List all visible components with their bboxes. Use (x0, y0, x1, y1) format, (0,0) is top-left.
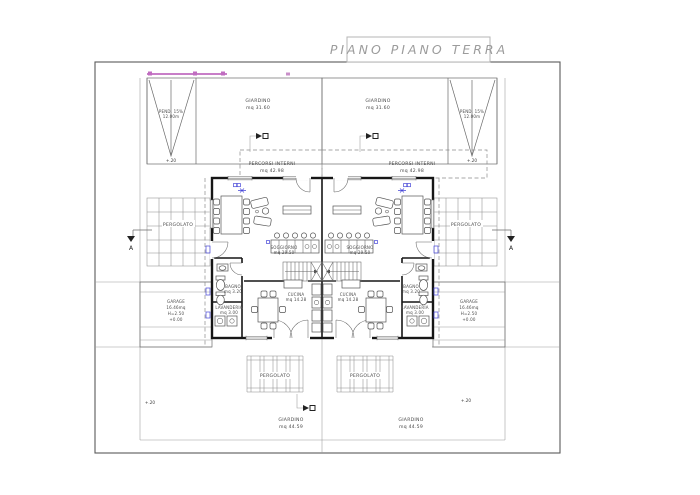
bath-left-area: mq 3.20 (224, 289, 242, 294)
level-tag: +.20 (461, 398, 472, 403)
garden-bottom-right-area: mq 44.59 (399, 424, 423, 430)
ramp-right-label2: 12.00m (464, 114, 481, 119)
section-arrow-icon (507, 236, 515, 242)
living-left-area: mq 29.50 (274, 250, 295, 255)
bath-right-area: mq 3.20 (402, 289, 420, 294)
garage-right-name: GARAGE (460, 299, 478, 304)
garage-right-height: H=2.50 (461, 311, 478, 316)
entrance-arrow-icon (297, 394, 315, 411)
ramp-left-label2: 12.00m (163, 114, 180, 119)
survey-mark-icon (147, 72, 290, 76)
entrance-arrow-icon (250, 133, 268, 152)
garage-right-level: +0.00 (462, 317, 476, 322)
kitchen-left-area: mq 14.28 (286, 297, 307, 302)
pergolato-bottom-right-label: PERGOLATO (350, 373, 380, 379)
garden-bottom-left-area: mq 44.59 (279, 424, 303, 430)
section-marker-right: A (492, 230, 515, 252)
paths-left-name: PERCORSI INTERNI (249, 161, 296, 167)
title-block: PIANO PIANO TERRA (330, 37, 508, 62)
paths-right-area: mq 42.98 (400, 168, 424, 174)
kitchen-right-area: mq 14.28 (338, 297, 359, 302)
entrance-arrow-icon (360, 133, 378, 152)
ramp-right (448, 78, 497, 164)
floor-plan-canvas: PIANO PIANO TERRA (0, 0, 700, 495)
level-tag: +.20 (166, 158, 177, 163)
pergolato-bottom-left-label: PERGOLATO (260, 373, 290, 379)
pergolato-right (434, 198, 497, 266)
garden-bottom-left-name: GIARDINO (278, 417, 303, 423)
unit-right (322, 176, 439, 347)
section-letter: A (129, 245, 134, 252)
pergolato-left (147, 198, 210, 266)
living-right-area: mq 29.50 (350, 250, 371, 255)
property-boundary (95, 62, 560, 453)
level-tag: +.20 (467, 158, 478, 163)
garage-left-height: H=2.50 (168, 311, 185, 316)
garage-left-area: 16.46mq (166, 305, 186, 310)
pergolato-right-label: PERGOLATO (451, 222, 481, 228)
garage-left-level: +0.00 (169, 317, 183, 322)
section-arrow-icon (127, 236, 135, 242)
garden-bottom-right-name: GIARDINO (398, 417, 423, 423)
garden-top-right-name: GIARDINO (365, 98, 390, 104)
laundry-right-area: mq 3.00 (406, 310, 424, 315)
paths-right-name: PERCORSI INTERNI (389, 161, 436, 167)
garage-left-name: GARAGE (167, 299, 185, 304)
garage-right-area: 16.46mq (459, 305, 479, 310)
level-tag: +.20 (145, 400, 156, 405)
garden-top-right-area: mq 31.60 (366, 105, 390, 111)
unit-left (205, 176, 322, 347)
garden-top-left (147, 78, 322, 164)
section-letter: A (509, 245, 514, 252)
paths-left-area: mq 42.98 (260, 168, 284, 174)
laundry-left-area: mq 3.00 (220, 310, 238, 315)
garden-top-left-area: mq 31.60 (246, 105, 270, 111)
pergolato-left-label: PERGOLATO (163, 222, 193, 228)
section-marker-left: A (127, 230, 152, 252)
floor-plan-page: PIANO PIANO TERRA (0, 0, 700, 495)
drawing-title: PIANO PIANO TERRA (330, 42, 508, 57)
garden-top-left-name: GIARDINO (245, 98, 270, 104)
ramp-left (147, 78, 196, 164)
